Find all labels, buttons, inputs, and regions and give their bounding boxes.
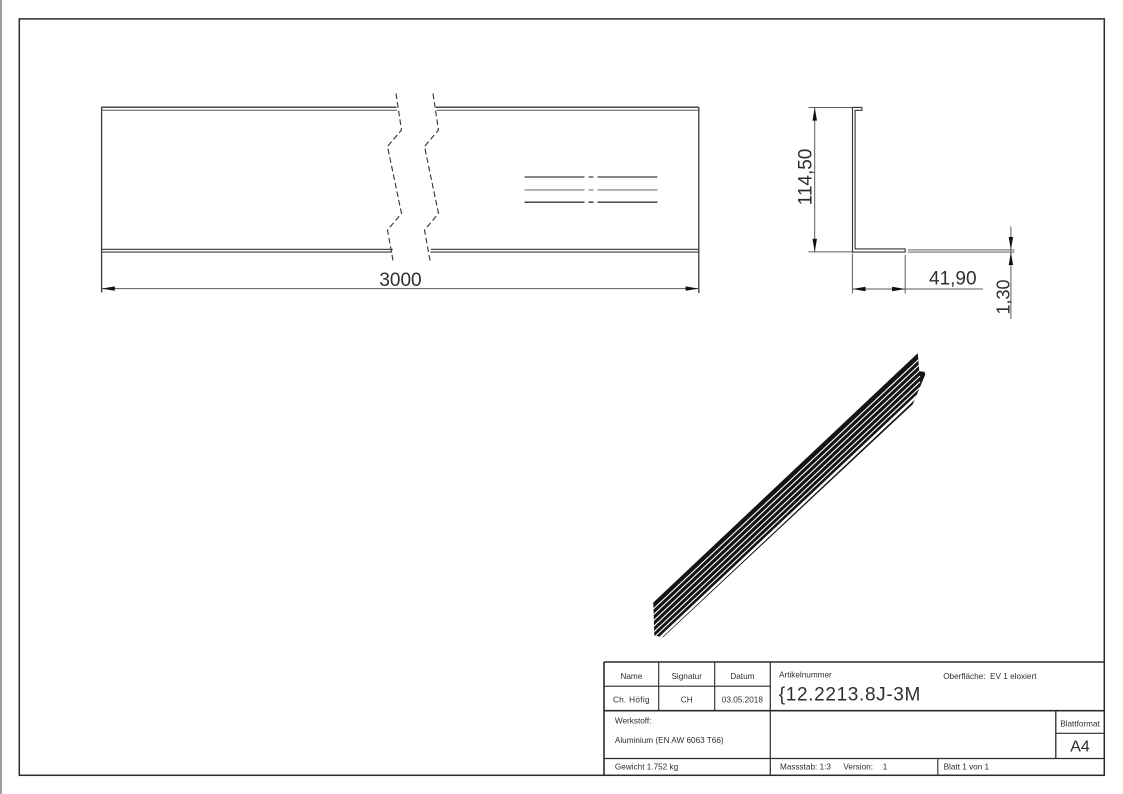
svg-text:114,50: 114,50 (796, 149, 817, 206)
svg-text:41,90: 41,90 (929, 269, 977, 290)
svg-text:CH: CH (681, 695, 693, 704)
svg-text:Datum: Datum (730, 672, 754, 681)
svg-text:Massstab: 1:3: Massstab: 1:3 (780, 763, 831, 772)
svg-text:Aluminium (EN AW 6063 T66): Aluminium (EN AW 6063 T66) (615, 736, 724, 745)
svg-text:Signatur: Signatur (671, 672, 702, 681)
svg-text:3000: 3000 (379, 270, 421, 291)
svg-text:1,30: 1,30 (993, 279, 1013, 314)
svg-text:A4: A4 (1070, 739, 1090, 756)
svg-text:Artikelnummer: Artikelnummer (779, 671, 832, 680)
svg-text:{12.2213.8J-3M: {12.2213.8J-3M (779, 685, 921, 706)
svg-text:Blattformat: Blattformat (1060, 720, 1100, 729)
svg-text:Gewicht 1.752 kg: Gewicht 1.752 kg (615, 763, 679, 772)
svg-text:Version:: Version: (843, 763, 873, 772)
svg-text:Oberfläche: EV 1 eloxiert: Oberfläche: EV 1 eloxiert (943, 672, 1037, 681)
svg-text:1: 1 (883, 763, 888, 772)
svg-text:03.05.2018: 03.05.2018 (722, 695, 763, 704)
svg-text:Werkstoff:: Werkstoff: (615, 717, 652, 726)
svg-text:Blatt 1 von 1: Blatt 1 von 1 (944, 763, 990, 772)
svg-text:Name: Name (620, 672, 642, 681)
svg-text:Ch. Höfig: Ch. Höfig (613, 695, 650, 704)
